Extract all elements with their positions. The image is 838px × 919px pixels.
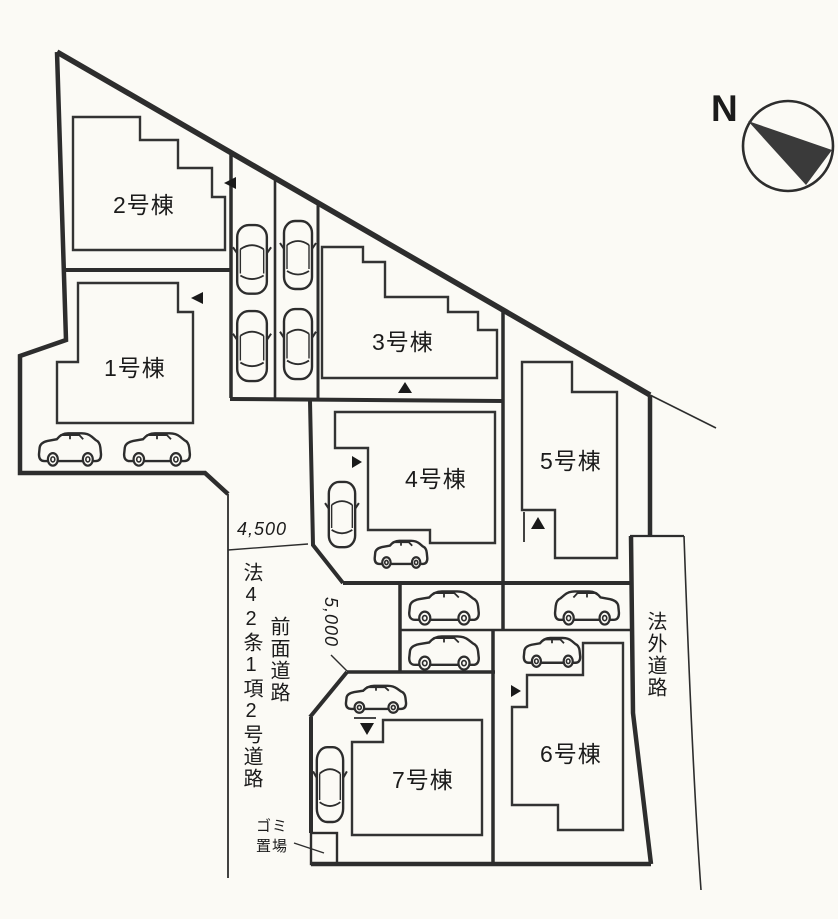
car-side	[39, 433, 101, 465]
building-3-label: 3号棟	[372, 323, 434, 357]
building-5-label: 5号棟	[540, 442, 602, 476]
north-compass	[743, 101, 833, 191]
garbage-label: ゴミ 置場	[256, 817, 288, 856]
compass-needle	[748, 121, 832, 185]
building-1-label: 1号棟	[104, 349, 166, 383]
car-side	[375, 541, 428, 568]
building-2-label: 2号棟	[113, 186, 175, 220]
entrance-marker-lot7	[360, 723, 374, 735]
car-side	[409, 591, 479, 624]
outside-road-east-edge	[684, 536, 701, 890]
car-top	[233, 225, 271, 294]
leader-5000	[331, 655, 347, 671]
front-road-label: 前面道路	[267, 616, 288, 704]
leader-4500	[228, 544, 308, 550]
car-top	[313, 747, 347, 822]
entrance-marker-lot1	[191, 292, 203, 304]
entrance-marker-lot5	[531, 517, 545, 529]
boundary-extension-line	[650, 395, 716, 428]
entrance-marker-lot6	[511, 685, 521, 697]
building-3-outline	[322, 247, 497, 378]
dimension-4500: 4,500	[237, 519, 287, 540]
site-plan: N 1号棟 2号棟 3号棟 4号棟 5号棟 6号棟 7号棟 法42条1項2号道路…	[0, 0, 838, 919]
dimension-5000: 5,000	[320, 597, 341, 647]
car-side	[124, 433, 190, 465]
car-side	[555, 591, 619, 624]
north-label: N	[711, 88, 738, 130]
car-top	[280, 309, 316, 379]
car-side	[524, 638, 580, 667]
leader-garbage	[294, 843, 324, 853]
outside-road-label: 法外道路	[644, 611, 665, 699]
garbage-label-line1: ゴミ	[256, 817, 288, 837]
front-road-statute-label: 法42条1項2号道路	[240, 562, 261, 790]
car-side	[409, 636, 479, 669]
building-6-label: 6号棟	[540, 735, 602, 769]
car-side	[346, 686, 406, 713]
buildings	[57, 117, 623, 835]
building-4-label: 4号棟	[405, 460, 467, 494]
garbage-label-line2: 置場	[256, 837, 288, 857]
car-top	[233, 311, 271, 381]
garbage-box	[311, 833, 337, 864]
car-top	[280, 221, 316, 289]
building-7-label: 7号棟	[392, 761, 454, 795]
entrance-marker-lot4	[352, 456, 362, 468]
entrance-marker-lot3	[398, 382, 412, 393]
car-top	[325, 482, 359, 547]
outside-road-west-edge	[631, 536, 651, 864]
